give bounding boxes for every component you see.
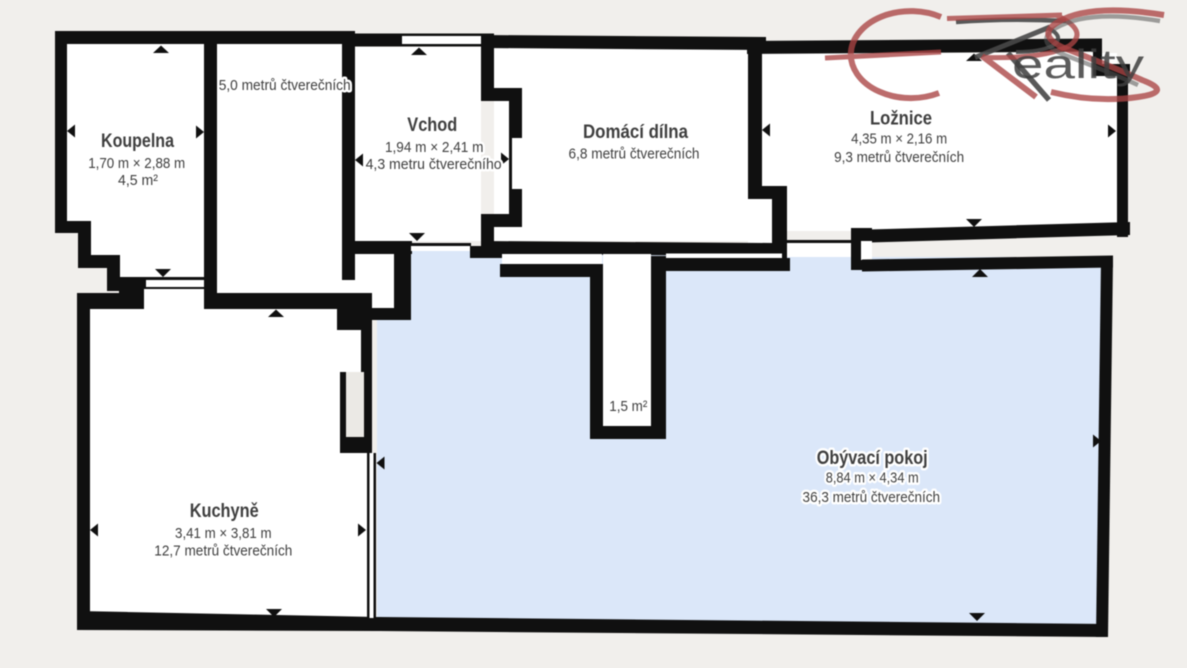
svg-text:8,84 m × 4,34 m: 8,84 m × 4,34 m bbox=[826, 470, 919, 487]
svg-text:Kuchyně: Kuchyně bbox=[190, 501, 259, 522]
svg-text:5,0 metrů čtverečních: 5,0 metrů čtverečních bbox=[219, 77, 351, 94]
svg-text:1,70 m × 2,88 m: 1,70 m × 2,88 m bbox=[88, 155, 185, 172]
svg-text:4,3 metru čtverečního: 4,3 metru čtverečního bbox=[366, 156, 502, 173]
svg-text:Ložnice: Ložnice bbox=[870, 109, 932, 130]
svg-text:Obývací pokoj: Obývací pokoj bbox=[817, 448, 928, 469]
svg-text:1,94 m × 2,41 m: 1,94 m × 2,41 m bbox=[385, 139, 484, 156]
svg-text:6,8 metrů čtverečních: 6,8 metrů čtverečních bbox=[569, 146, 700, 163]
svg-text:12,7 metrů čtverečních: 12,7 metrů čtverečních bbox=[154, 543, 292, 560]
svg-text:1,5 m²: 1,5 m² bbox=[609, 398, 647, 415]
svg-text:eality: eality bbox=[1012, 41, 1145, 87]
svg-text:Vchod: Vchod bbox=[407, 115, 457, 136]
svg-text:4,35 m × 2,16 m: 4,35 m × 2,16 m bbox=[851, 131, 947, 148]
svg-text:4,5 m²: 4,5 m² bbox=[118, 172, 158, 189]
svg-text:36,3 metrů čtverečních: 36,3 metrů čtverečních bbox=[803, 489, 941, 506]
svg-text:Koupelna: Koupelna bbox=[101, 131, 174, 152]
svg-text:3,41 m × 3,81 m: 3,41 m × 3,81 m bbox=[175, 525, 272, 542]
svg-text:Domácí dílna: Domácí dílna bbox=[583, 122, 688, 143]
svg-text:9,3 metrů čtverečních: 9,3 metrů čtverečních bbox=[834, 149, 964, 166]
